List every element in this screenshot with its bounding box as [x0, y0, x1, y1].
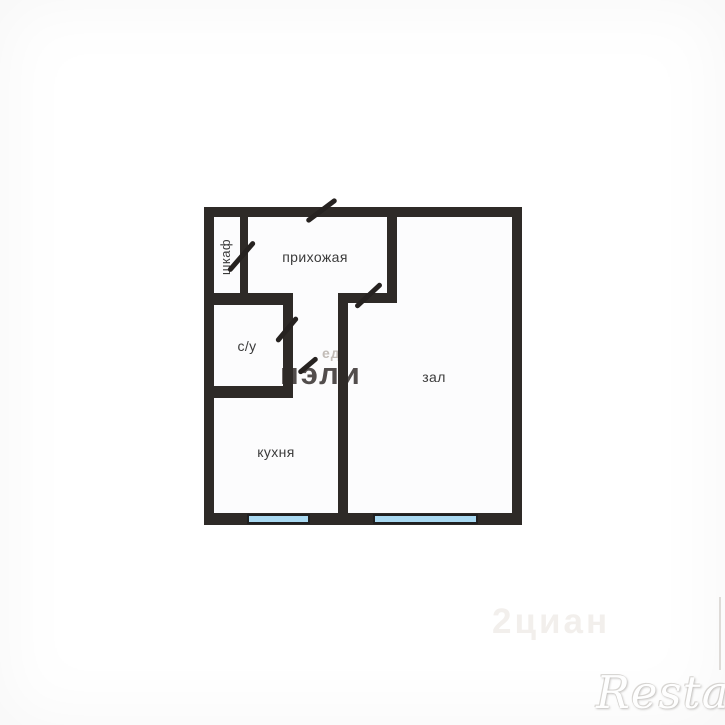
watermark-edge-line — [719, 597, 721, 670]
room-label-bathroom: с/у — [225, 338, 269, 354]
room-label-closet: шкаф — [213, 229, 239, 285]
floorplan-image: ед пэли 2циан шкаф прихожая с/у кухня за… — [0, 0, 725, 725]
wall-hallway-right — [387, 217, 397, 303]
watermark-brand-restate: Restate — [596, 666, 725, 719]
wall-outer-right — [512, 207, 522, 525]
wall-bathroom-bottom — [214, 386, 283, 398]
wall-living-room-left — [338, 303, 348, 513]
kitchen-window — [247, 514, 310, 524]
wall-bathroom-top — [214, 293, 293, 305]
living-room-window — [373, 514, 478, 524]
plan-interior-background — [204, 207, 522, 525]
room-label-hallway: прихожая — [270, 249, 360, 265]
wall-bathroom-right — [283, 303, 293, 398]
wall-outer-top — [204, 207, 522, 217]
room-label-kitchen: кухня — [246, 444, 306, 460]
watermark-corner-faint: 2циан — [492, 602, 610, 642]
room-label-living-room: зал — [405, 369, 463, 385]
